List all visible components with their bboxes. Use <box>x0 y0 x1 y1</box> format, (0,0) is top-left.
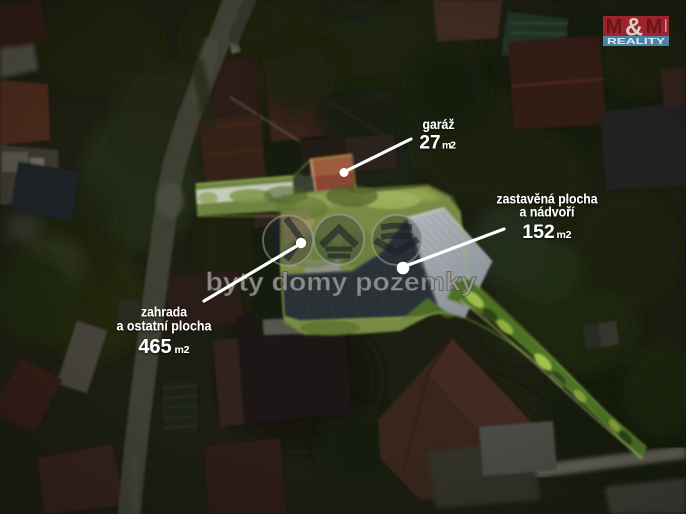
svg-text:zahrada: zahrada <box>141 304 187 319</box>
svg-text:152: 152 <box>522 221 555 243</box>
svg-text:m2: m2 <box>557 229 572 241</box>
svg-text:REALITY: REALITY <box>607 36 666 46</box>
svg-text:garáž: garáž <box>423 117 455 132</box>
svg-text:a nádvoří: a nádvoří <box>520 205 576 220</box>
svg-text:byty domy pozemky: byty domy pozemky <box>206 267 478 297</box>
svg-text:m2: m2 <box>175 344 190 356</box>
svg-text:M: M <box>606 16 623 38</box>
svg-text:m2: m2 <box>442 140 456 152</box>
svg-text:465: 465 <box>138 336 171 358</box>
svg-text:27: 27 <box>419 133 440 154</box>
svg-text:a ostatní plocha: a ostatní plocha <box>117 319 212 334</box>
svg-text:M: M <box>646 16 663 38</box>
